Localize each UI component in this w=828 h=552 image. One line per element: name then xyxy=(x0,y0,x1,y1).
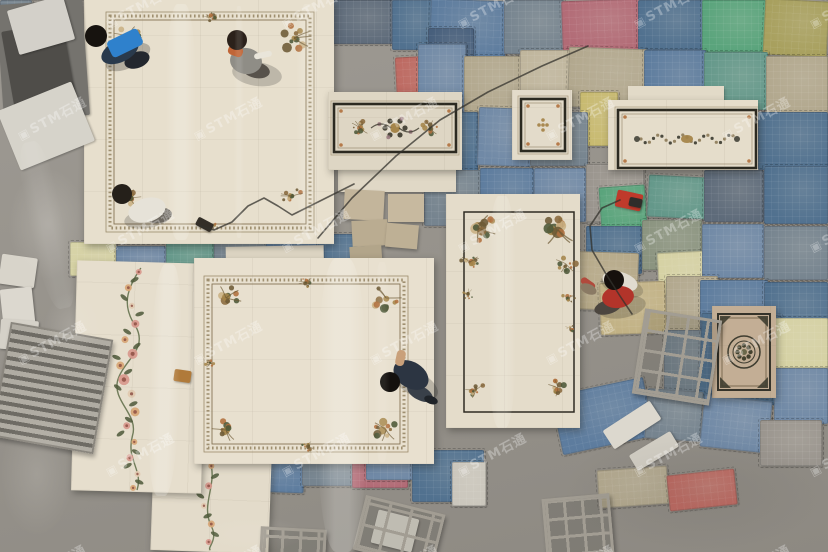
watermark-text: ▣STM石通 xyxy=(190,315,266,367)
watermark-text: ▣STM石通 xyxy=(102,0,178,32)
watermark-text: ▣STM石通 xyxy=(542,315,618,367)
watermark-text: ▣STM石通 xyxy=(806,0,828,32)
watermark-logo-icon: ▣ xyxy=(367,349,384,367)
watermark-text: ▣STM石通 xyxy=(542,539,618,552)
watermark-text: ▣STM石通 xyxy=(454,203,530,255)
watermark-logo-icon: ▣ xyxy=(367,125,384,143)
watermark-text: ▣STM石通 xyxy=(366,315,442,367)
watermark-text: ▣STM石通 xyxy=(190,539,266,552)
watermark-text: ▣STM石通 xyxy=(0,203,2,255)
watermark-logo-icon: ▣ xyxy=(279,13,296,31)
watermark-text: ▣STM石通 xyxy=(630,0,706,32)
watermark-text: ▣STM石通 xyxy=(0,0,2,32)
watermark-logo-icon: ▣ xyxy=(807,237,824,255)
watermark-text: ▣STM石通 xyxy=(454,0,530,32)
watermark-text: ▣STM石通 xyxy=(718,539,794,552)
watermark-text: ▣STM石通 xyxy=(542,91,618,143)
watermark-text: ▣STM石通 xyxy=(806,427,828,479)
watermark-text: ▣STM石通 xyxy=(366,539,442,552)
watermark-logo-icon: ▣ xyxy=(807,461,824,479)
watermark-logo-icon: ▣ xyxy=(543,349,560,367)
watermark-text: ▣STM石通 xyxy=(278,203,354,255)
watermark-logo-icon: ▣ xyxy=(103,13,120,31)
watermark-text: ▣STM石通 xyxy=(366,91,442,143)
watermark-logo-icon: ▣ xyxy=(631,237,648,255)
watermark-logo-icon: ▣ xyxy=(15,349,32,367)
watermark-text: ▣STM石通 xyxy=(806,203,828,255)
watermark-logo-icon: ▣ xyxy=(15,125,32,143)
watermark-logo-icon: ▣ xyxy=(191,349,208,367)
watermark-logo-icon: ▣ xyxy=(807,13,824,31)
watermark-logo-icon: ▣ xyxy=(279,237,296,255)
watermark-text: ▣STM石通 xyxy=(278,0,354,32)
watermark-text: ▣STM石通 xyxy=(630,427,706,479)
watermark-logo-icon: ▣ xyxy=(631,13,648,31)
watermark-text: ▣STM石通 xyxy=(14,539,90,552)
watermark-layer: ▣STM石通▣STM石通▣STM石通▣STM石通▣STM石通▣STM石通▣STM… xyxy=(0,0,828,552)
watermark-logo-icon: ▣ xyxy=(719,125,736,143)
watermark-text: ▣STM石通 xyxy=(0,427,2,479)
watermark-logo-icon: ▣ xyxy=(455,237,472,255)
watermark-text: ▣STM石通 xyxy=(454,427,530,479)
watermark-text: ▣STM石通 xyxy=(102,203,178,255)
watermark-logo-icon: ▣ xyxy=(631,461,648,479)
watermark-text: ▣STM石通 xyxy=(102,427,178,479)
watermark-text: ▣STM石通 xyxy=(14,91,90,143)
watermark-text: ▣STM石通 xyxy=(14,315,90,367)
watermark-logo-icon: ▣ xyxy=(279,461,296,479)
watermark-logo-icon: ▣ xyxy=(103,237,120,255)
watermark-text: ▣STM石通 xyxy=(190,91,266,143)
watermark-logo-icon: ▣ xyxy=(543,125,560,143)
watermark-logo-icon: ▣ xyxy=(719,349,736,367)
watermark-logo-icon: ▣ xyxy=(455,13,472,31)
watermark-text: ▣STM石通 xyxy=(278,427,354,479)
watermark-logo-icon: ▣ xyxy=(191,125,208,143)
watermark-text: ▣STM石通 xyxy=(718,91,794,143)
watermark-logo-icon: ▣ xyxy=(103,461,120,479)
watermark-logo-icon: ▣ xyxy=(455,461,472,479)
watermark-text: ▣STM石通 xyxy=(630,203,706,255)
workshop-aerial-photo: ▣STM石通▣STM石通▣STM石通▣STM石通▣STM石通▣STM石通▣STM… xyxy=(0,0,828,552)
watermark-text: ▣STM石通 xyxy=(718,315,794,367)
